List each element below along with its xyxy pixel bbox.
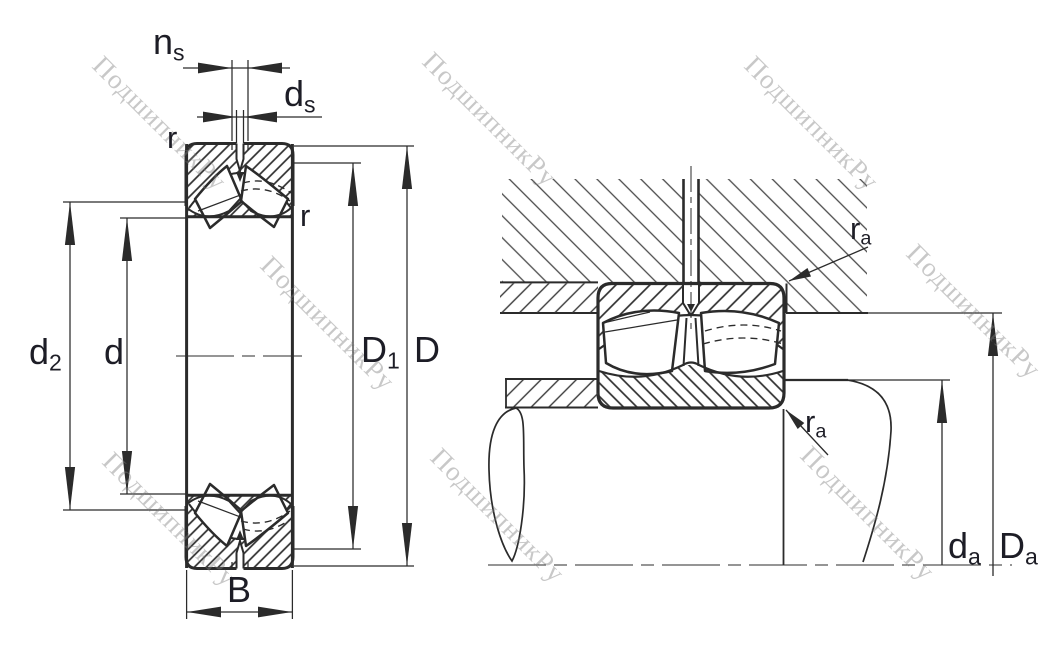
dim-label-D: D — [414, 332, 440, 372]
dim-label-B: B — [227, 572, 251, 612]
bearing-lower-half — [186, 484, 293, 569]
housing-section-left — [502, 179, 683, 283]
fillet-label-ra-housing: ra — [850, 213, 871, 249]
shaft-fillet-section — [489, 408, 524, 561]
dim-label-Da: Da — [999, 528, 1038, 568]
housing-cover-ring-section — [500, 284, 598, 313]
shaft-contour — [847, 380, 891, 562]
fillet-label-ra-shaft: ra — [805, 406, 826, 442]
dim-label-d2: d2 — [29, 334, 62, 374]
left-view-bearing-section — [176, 144, 302, 569]
dim-label-ds: ds — [284, 76, 316, 116]
radius-label-r-inner: r — [300, 200, 310, 236]
dim-label-da: da — [948, 528, 981, 568]
dim-label-D1: D1 — [361, 332, 400, 372]
bearing-drawing-canvas: ПодшипникРу ПодшипникРу ПодшипникРу Подш… — [0, 0, 1050, 650]
dim-label-ns: ns — [153, 24, 185, 64]
dim-label-d: d — [104, 334, 124, 374]
radius-label-r-outer: r — [167, 122, 177, 158]
bearing-upper-half — [186, 144, 293, 229]
shaft-abutment-ring-section — [506, 380, 598, 408]
right-view-mounting-section — [488, 166, 1012, 565]
bearing-technical-drawing — [0, 0, 1050, 650]
